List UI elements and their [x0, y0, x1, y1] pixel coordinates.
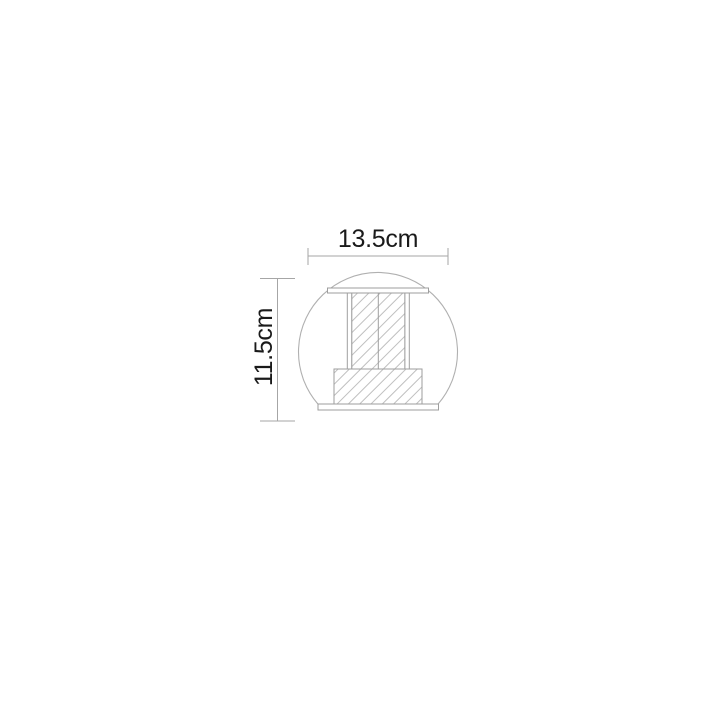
product-dimension-diagram: 13.5cm 11.5cm	[0, 0, 720, 720]
top-plate	[328, 288, 429, 293]
bottom-plate	[318, 404, 439, 410]
base-block	[334, 369, 422, 404]
column-left-rail	[347, 293, 351, 369]
wall-light-figure	[299, 272, 458, 410]
height-dimension-label: 11.5cm	[251, 277, 277, 417]
column-right-rail	[405, 293, 409, 369]
width-dimension-label: 13.5cm	[308, 226, 448, 252]
dimension-drawing-svg	[0, 0, 720, 720]
